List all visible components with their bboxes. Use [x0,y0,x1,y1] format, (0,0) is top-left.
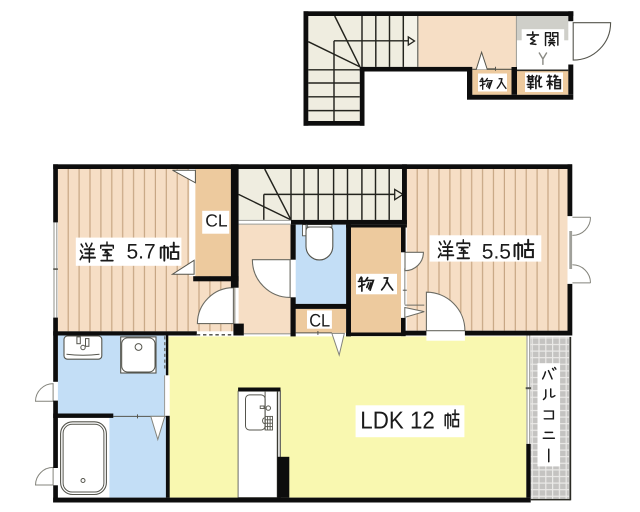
svg-text:CL: CL [309,310,330,330]
svg-text:5.7: 5.7 [127,240,156,263]
svg-text:LDK 12: LDK 12 [360,408,435,435]
svg-text:5.5: 5.5 [482,241,511,264]
svg-text:CL: CL [205,211,228,231]
